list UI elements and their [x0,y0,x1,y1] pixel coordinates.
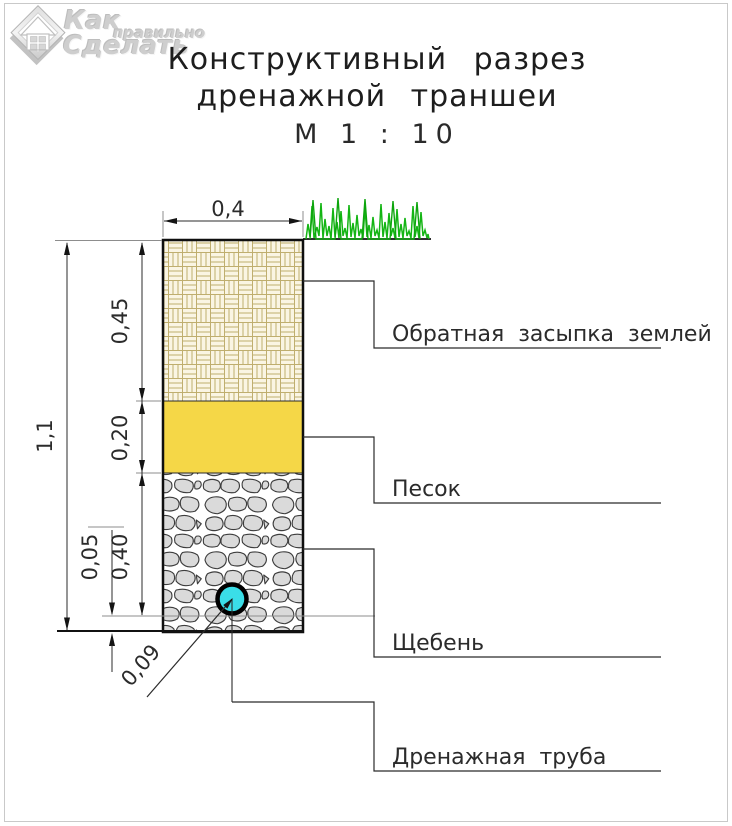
trench-column [163,240,303,632]
backfill-layer [163,240,303,401]
label-backfill: Обратная засыпка землей [392,322,712,347]
dim-text-bedding-depth: 0,05 [78,534,102,581]
dim-text-backfill-depth: 0,45 [108,298,132,345]
label-sand: Песок [392,477,461,502]
dim-layer-stack: 0,45 0,20 0,40 [108,242,145,616]
dim-text-total-depth: 1,1 [33,419,57,452]
label-pipe: Дренажная труба [392,745,606,770]
dim-text-sand-depth: 0,20 [108,415,132,462]
dim-text-trench-width: 0,4 [211,197,244,221]
label-gravel: Щебень [392,631,484,656]
ground-surface [303,198,431,239]
dim-trench-width: 0,4 [164,197,302,224]
callout-labels: Обратная засыпка землей Песок Щебень Дре… [392,322,712,770]
page: Как правильно Сделать Конструктивный раз… [0,0,732,826]
dim-text-pipe-diameter: 0,09 [116,640,165,691]
technical-drawing: 0,4 1,1 0,45 0,20 0,40 0 [0,0,732,826]
dim-total-depth: 1,1 [33,242,70,631]
leader-sand [303,437,661,503]
sand-layer [163,401,303,473]
